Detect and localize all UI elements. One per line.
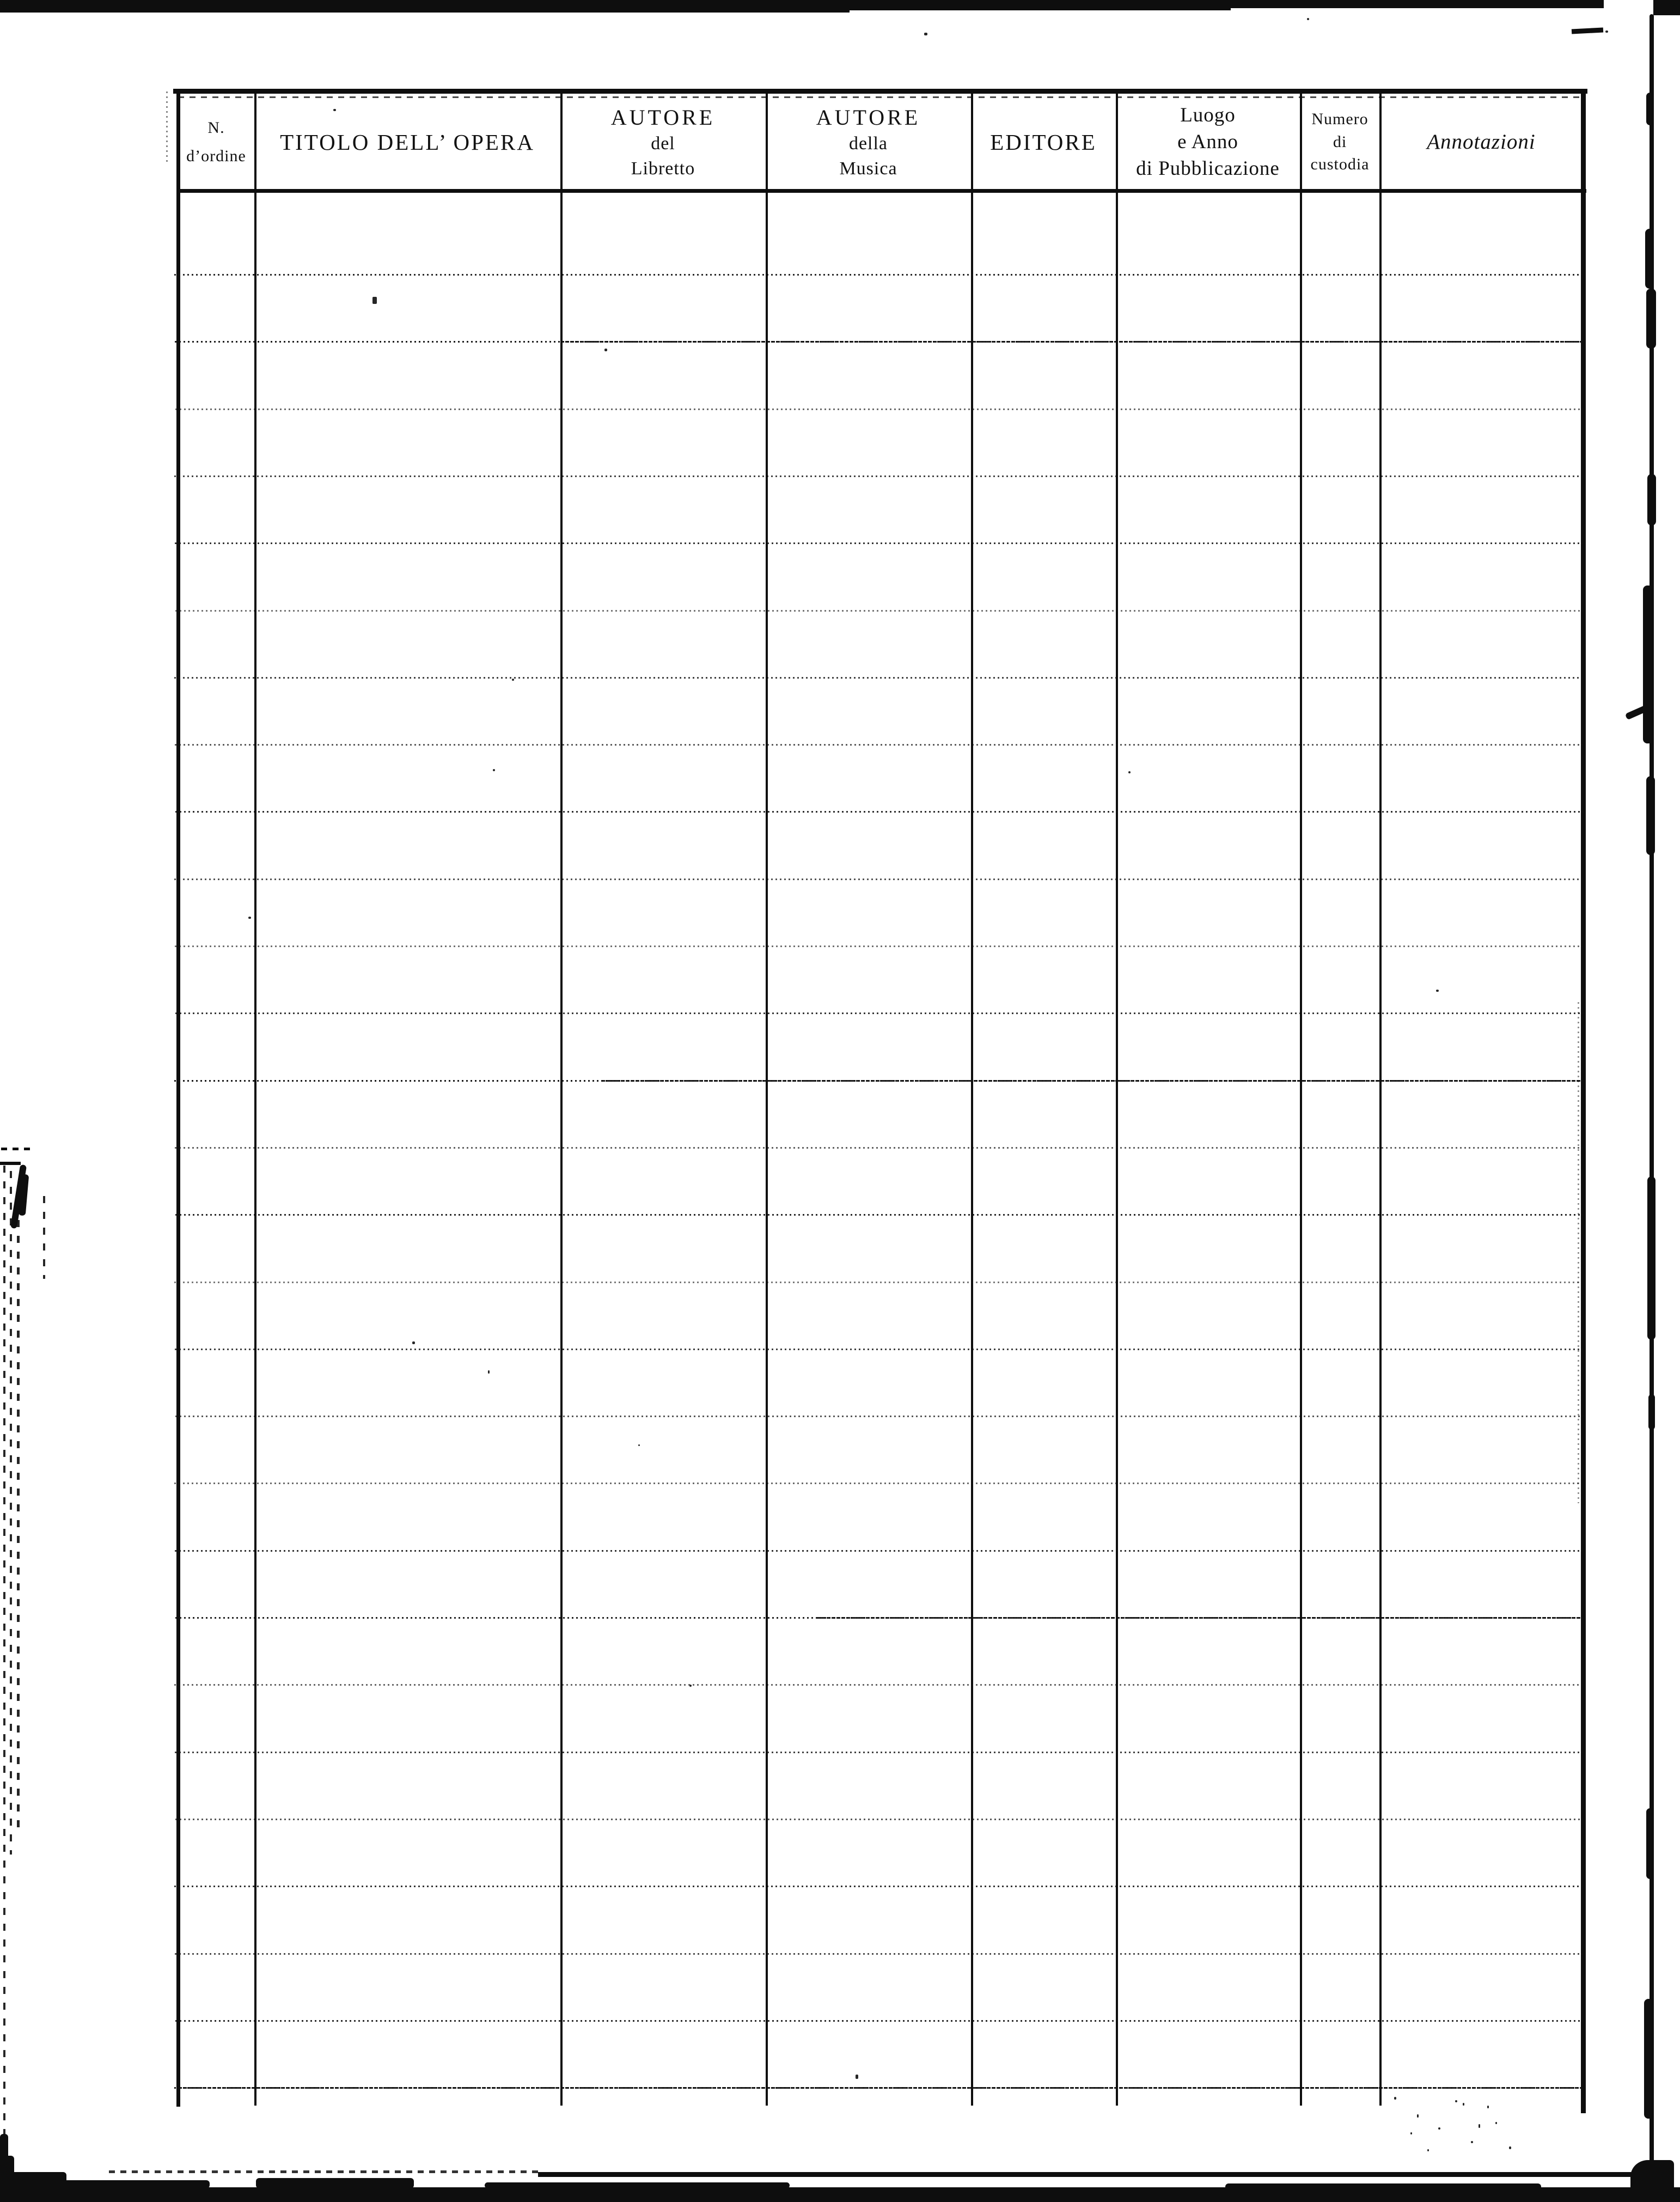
scan-speck [512, 679, 514, 681]
left-margin-broken-line [43, 1196, 45, 1279]
left-margin-hook [0, 1162, 21, 1165]
column-divider-line [560, 93, 563, 2106]
header-label: di [1333, 133, 1347, 151]
table-top-border [173, 89, 1587, 94]
row-rule-line [175, 1416, 1584, 1417]
scan-speck [493, 769, 495, 771]
page-corner-mark [0, 2172, 66, 2202]
scan-speck [1417, 2114, 1419, 2118]
scan-speck [412, 1341, 415, 1344]
scan-speck [1410, 2132, 1412, 2134]
row-rule-dark-segment [178, 2087, 1583, 2089]
scan-speck [924, 33, 927, 35]
row-rule-line [175, 744, 1583, 746]
page-edge-top-band [1223, 0, 1604, 8]
ghost-vertical-line [1578, 1002, 1579, 1503]
column-header-luogo-anno: Luogo e Anno di Pubblicazione [1116, 97, 1300, 187]
row-rule-line [175, 946, 1583, 947]
row-rule-line [175, 610, 1584, 612]
column-header-titolo-opera: TITOLO DELL’ OPERA [254, 97, 560, 187]
header-label: Musica [839, 159, 897, 179]
scan-speck [372, 297, 377, 304]
table-right-border [1581, 90, 1586, 2113]
header-bottom-border [176, 189, 1586, 193]
column-header-editore: EDITORE [971, 97, 1116, 187]
scan-speck [1438, 2127, 1440, 2130]
header-label: Annotazioni [1427, 131, 1536, 154]
scan-speck [333, 109, 336, 111]
page-edge-right-blob [1645, 229, 1654, 289]
bottom-streak-line [538, 2172, 1639, 2177]
column-divider-line [1300, 93, 1302, 2106]
header-label: Numero [1311, 111, 1368, 128]
row-rule-dark-segment [817, 1617, 1583, 1619]
column-header-autore-musica: AUTORE della Musica [766, 97, 971, 187]
left-margin-broken-line [17, 1220, 20, 1827]
ghost-vertical-line [166, 92, 168, 165]
column-divider-line [1116, 93, 1118, 2106]
header-label: TITOLO DELL’ OPERA [280, 130, 535, 154]
row-rule-line [175, 2020, 1584, 2022]
scan-speck [1128, 771, 1131, 773]
scan-speck [1509, 2146, 1511, 2149]
row-rule-line [175, 408, 1584, 410]
header-label: d’ordine [186, 148, 246, 165]
column-divider-line [971, 93, 973, 2106]
scan-speck [488, 1370, 490, 1374]
row-rule-line [175, 1214, 1584, 1216]
scan-speck [1455, 2100, 1457, 2102]
column-header-numero-custodia: Numero di custodia [1300, 97, 1380, 187]
page-edge-bottom-bump [1225, 2183, 1541, 2193]
scanned-register-page: N. d’ordine TITOLO DELL’ OPERA AUTORE de… [0, 0, 1680, 2202]
row-rule-line [174, 879, 1583, 880]
page-edge-top-band [0, 0, 850, 13]
scan-speck [1394, 2097, 1396, 2100]
row-rule-line [175, 811, 1584, 813]
scan-speck [638, 1444, 640, 1446]
header-label: del [651, 134, 675, 154]
row-rule-line [174, 1684, 1583, 1686]
left-margin-broken-line [10, 1171, 12, 1855]
header-label: di Pubblicazione [1136, 158, 1280, 180]
row-rule-line [175, 1819, 1584, 1820]
column-header-annotazioni: Annotazioni [1380, 97, 1583, 187]
scan-speck [1463, 2103, 1464, 2106]
page-edge-right-blob [1643, 585, 1653, 743]
row-rule-line [175, 1953, 1583, 1955]
header-label: Libretto [631, 159, 695, 179]
row-rule-line [175, 1550, 1583, 1552]
scan-speck [1307, 18, 1309, 20]
row-rule-dark-segment [601, 1080, 1583, 1082]
row-rule-line [174, 1483, 1583, 1484]
page-edge-right-blob [1647, 1176, 1655, 1340]
row-rule-line [175, 542, 1583, 544]
row-rule-line [175, 1349, 1583, 1350]
scan-speck [1436, 990, 1439, 992]
page-edge-top-band [1653, 0, 1680, 15]
scan-speck [1427, 2149, 1429, 2151]
header-label: Luogo [1180, 105, 1236, 126]
row-rule-line [174, 677, 1583, 679]
scan-speck [1487, 2106, 1489, 2108]
scan-speck [604, 349, 607, 351]
page-edge-right-blob [1646, 93, 1654, 125]
page-edge-right-blob [1644, 1999, 1653, 2119]
page-edge-right-blob [1646, 1808, 1654, 1879]
scan-speck [856, 2075, 858, 2079]
scan-speck [1471, 2141, 1473, 2143]
header-label: EDITORE [990, 130, 1097, 154]
page-edge-right-blob [1646, 289, 1656, 349]
row-rule-line [174, 274, 1583, 276]
page-edge-right-blob [1647, 474, 1656, 526]
row-rule-line [175, 1147, 1583, 1149]
left-margin-dash-row [1, 1148, 34, 1150]
row-rule-line [174, 475, 1583, 477]
table-header-row: N. d’ordine TITOLO DELL’ OPERA AUTORE de… [178, 97, 1583, 187]
header-label: e Anno [1177, 131, 1238, 153]
scan-speck [689, 1685, 692, 1687]
column-header-autore-libretto: AUTORE del Libretto [560, 97, 766, 187]
row-rule-line [175, 1012, 1584, 1014]
page-edge-right-blob [1648, 1394, 1655, 1430]
scan-speck [1479, 2124, 1480, 2128]
header-label: custodia [1311, 156, 1370, 173]
column-divider-line [254, 93, 256, 2106]
row-rule-line [174, 1886, 1583, 1887]
left-margin-broken-line [3, 1166, 5, 2170]
page-edge-tick [1572, 27, 1603, 34]
bottom-dashed-streak [109, 2170, 538, 2173]
page-edge-top-band [841, 0, 1231, 10]
page-edge-bottom-bump [256, 2178, 414, 2188]
header-label: N. [207, 119, 224, 137]
row-rule-dark-segment [560, 341, 1583, 343]
column-divider-line [1379, 93, 1382, 2106]
header-label: AUTORE [816, 106, 920, 129]
page-edge-right-blob [1646, 776, 1655, 855]
row-rule-line [175, 1752, 1583, 1753]
scan-speck [1605, 31, 1608, 33]
scan-speck [1495, 2122, 1497, 2124]
page-edge-bottom-bump [485, 2182, 790, 2188]
scan-speck [248, 917, 251, 919]
header-label: della [849, 134, 888, 154]
column-header-n-ordine: N. d’ordine [178, 97, 254, 187]
row-rule-line [174, 1282, 1583, 1283]
header-label: AUTORE [611, 106, 715, 129]
table-left-border [176, 90, 180, 2107]
column-divider-line [766, 93, 768, 2106]
